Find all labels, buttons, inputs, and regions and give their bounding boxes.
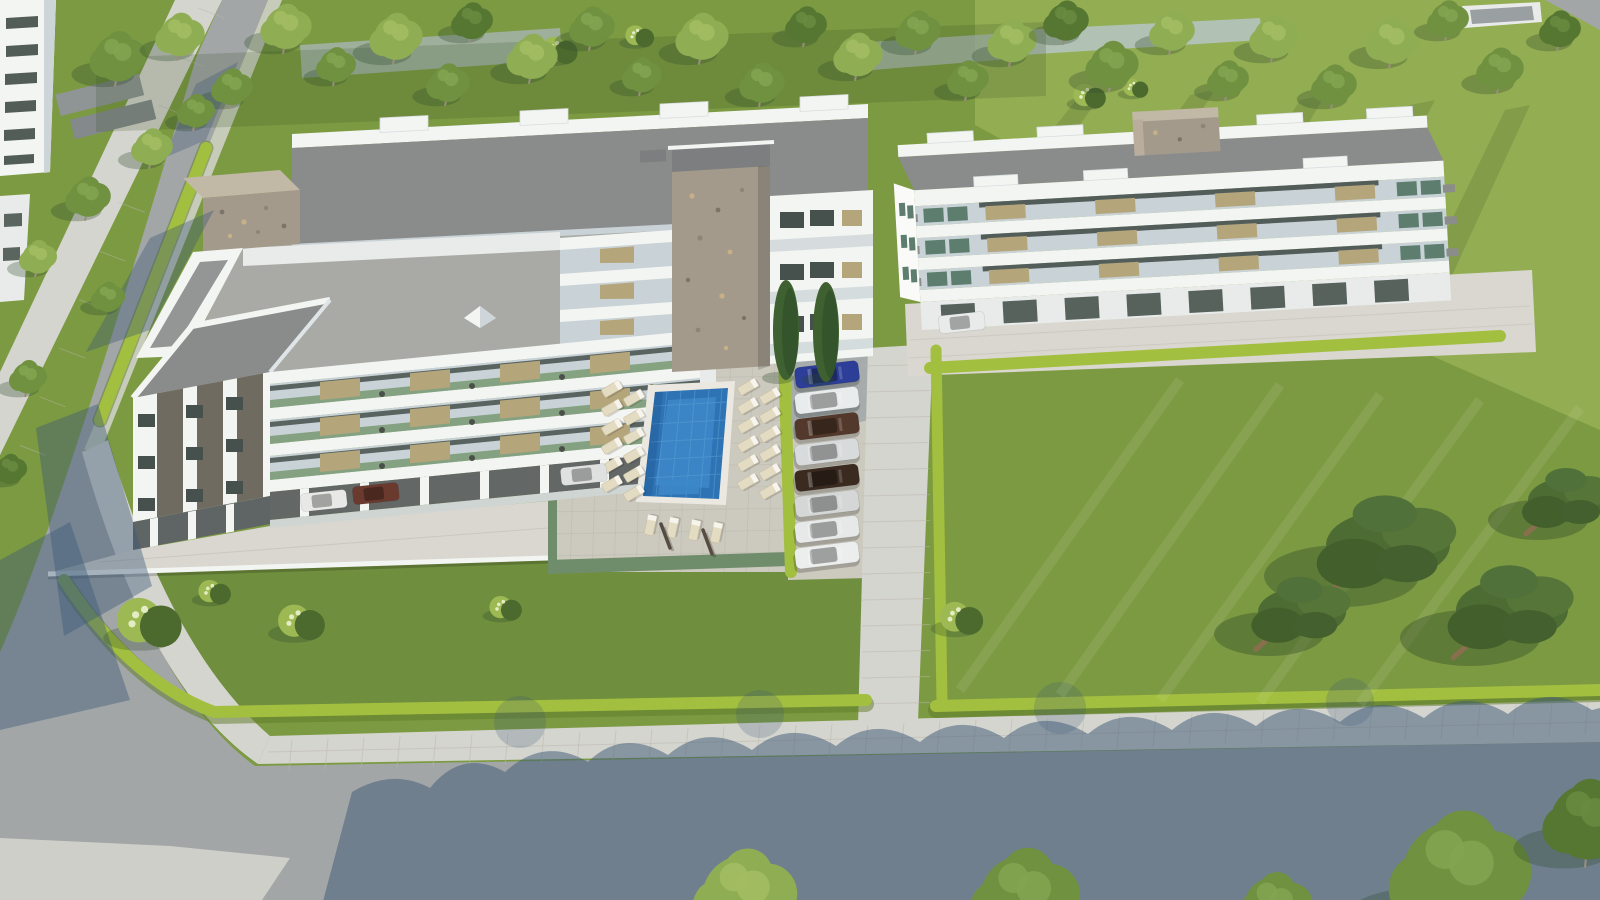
parking-hedge (784, 358, 791, 572)
aerial-render (0, 0, 1600, 900)
walkway-hedge (936, 350, 942, 700)
stone-core (1132, 107, 1220, 156)
stone-core-center (668, 142, 774, 372)
facade-panels (157, 373, 263, 517)
pool-steps (658, 478, 700, 495)
